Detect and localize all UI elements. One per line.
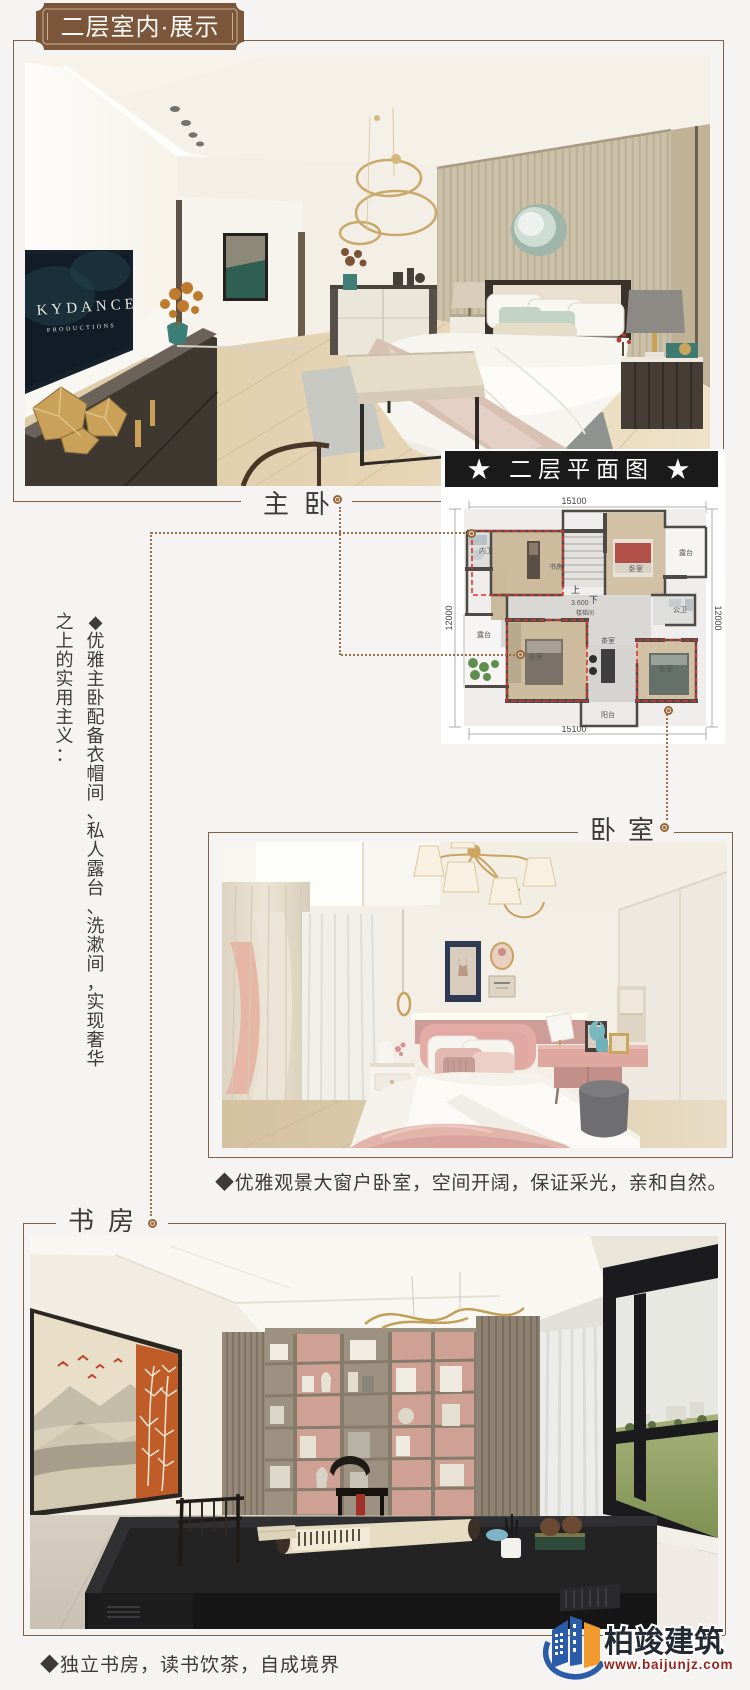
svg-text:15100: 15100 — [561, 496, 586, 506]
svg-text:12000: 12000 — [444, 605, 454, 630]
svg-text:阳台: 阳台 — [601, 710, 615, 719]
svg-text:3.600: 3.600 — [571, 600, 589, 607]
svg-text:楼梯间: 楼梯间 — [576, 609, 594, 617]
svg-text:茶室: 茶室 — [601, 636, 615, 645]
svg-text:书房: 书房 — [549, 562, 563, 571]
svg-text:上: 上 — [571, 585, 580, 595]
svg-text:内卫: 内卫 — [479, 546, 493, 555]
svg-text:www.baijunjz.com: www.baijunjz.com — [603, 1657, 733, 1672]
svg-text:露台: 露台 — [477, 630, 491, 639]
svg-text:卧室: 卧室 — [629, 564, 643, 573]
svg-text:柏竣建筑: 柏竣建筑 — [604, 1625, 724, 1659]
svg-text:12000: 12000 — [713, 605, 723, 630]
svg-text:下: 下 — [589, 595, 598, 605]
svg-text:二层室内·展示: 二层室内·展示 — [61, 14, 220, 41]
svg-text:卧室: 卧室 — [659, 664, 673, 673]
svg-text:公卫: 公卫 — [673, 606, 687, 614]
svg-text:露台: 露台 — [679, 548, 693, 557]
svg-text:卧室: 卧室 — [529, 652, 543, 661]
